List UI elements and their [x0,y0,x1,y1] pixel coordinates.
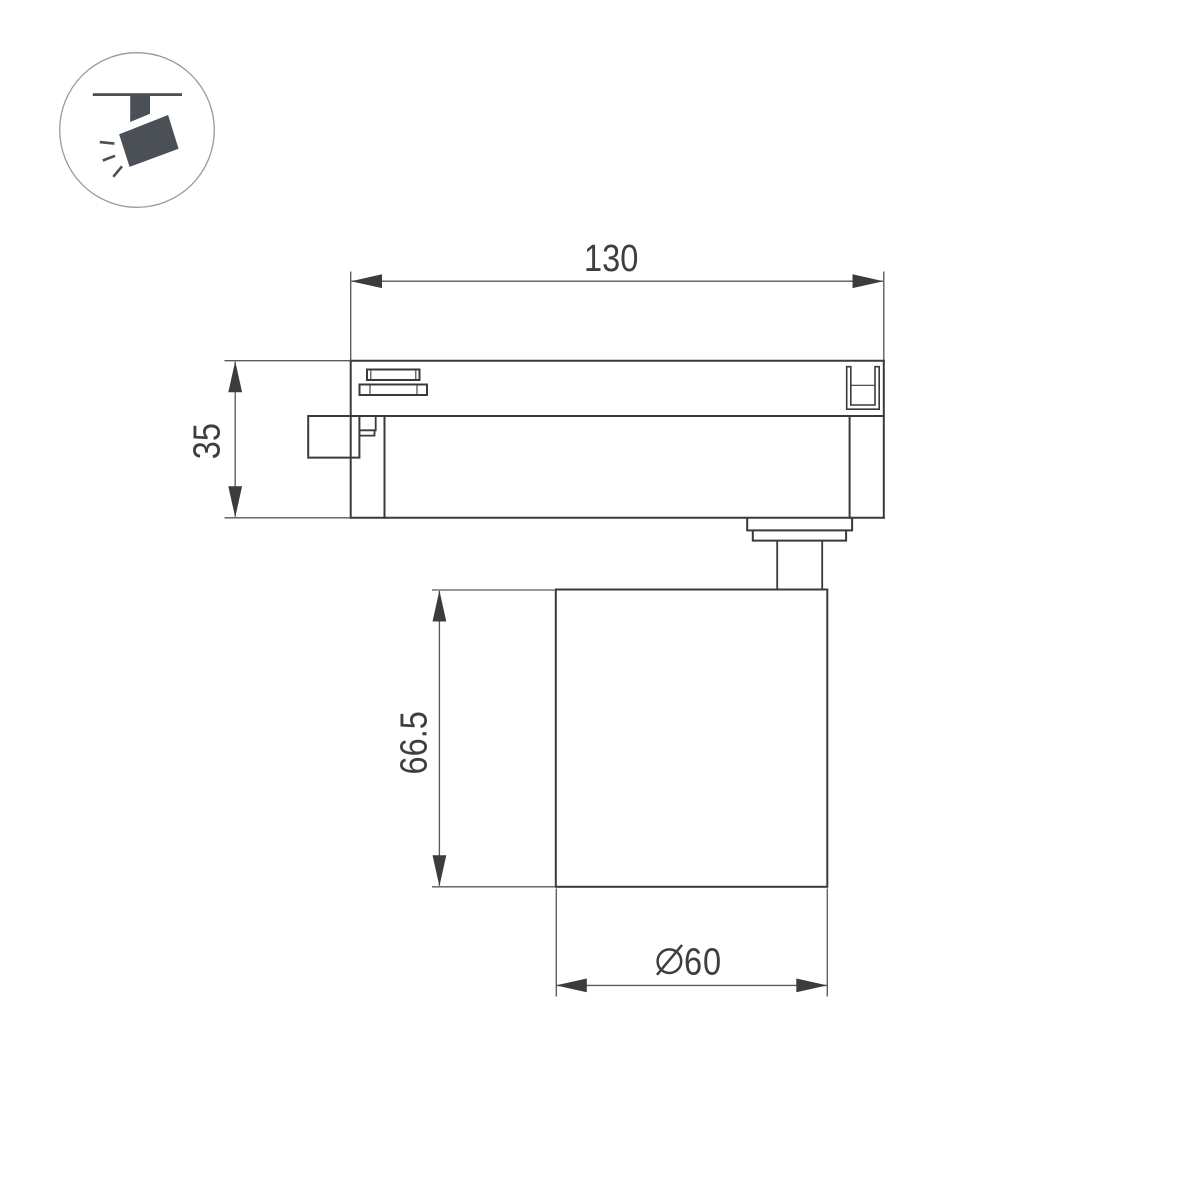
svg-text:35: 35 [185,423,228,459]
svg-text:130: 130 [584,237,638,280]
svg-text:66.5: 66.5 [392,711,435,774]
svg-text:60: 60 [684,940,722,983]
